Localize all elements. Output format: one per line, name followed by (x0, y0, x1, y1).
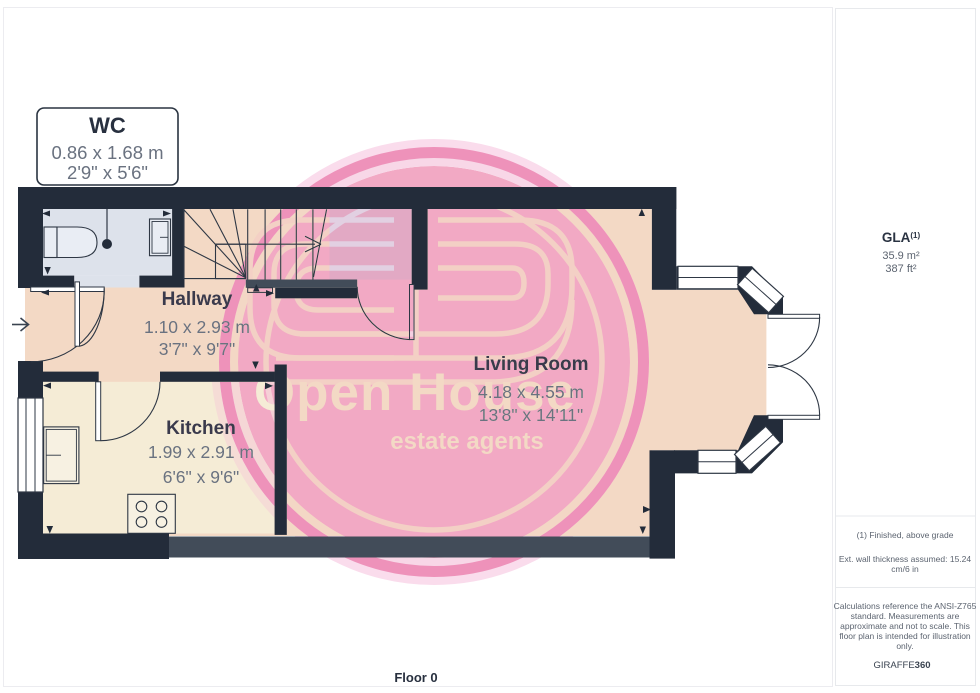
svg-text:standard. Measurements are: standard. Measurements are (851, 611, 960, 621)
svg-text:387 ft²: 387 ft² (885, 263, 917, 275)
svg-text:Ext. wall thickness assumed: 1: Ext. wall thickness assumed: 15.24 (839, 554, 972, 564)
svg-text:GIRAFFE360: GIRAFFE360 (873, 660, 930, 671)
svg-text:(1) Finished, above grade: (1) Finished, above grade (857, 530, 954, 540)
svg-text:2'9" x 5'6": 2'9" x 5'6" (67, 162, 148, 183)
svg-text:WC: WC (89, 113, 126, 138)
svg-text:only.: only. (896, 641, 913, 651)
svg-text:Calculations reference the ANS: Calculations reference the ANSI-Z765 (834, 601, 977, 611)
svg-text:0.86 x 1.68 m: 0.86 x 1.68 m (51, 142, 163, 163)
svg-text:Floor 0: Floor 0 (394, 670, 437, 685)
svg-text:6'6" x 9'6": 6'6" x 9'6" (163, 467, 240, 487)
svg-text:approximate and not to scale.: approximate and not to scale. This (840, 621, 970, 631)
svg-text:cm/6 in: cm/6 in (891, 564, 919, 574)
svg-text:floor plan is intended for ill: floor plan is intended for illustration (839, 631, 971, 641)
svg-text:35.9 m²: 35.9 m² (882, 250, 920, 262)
